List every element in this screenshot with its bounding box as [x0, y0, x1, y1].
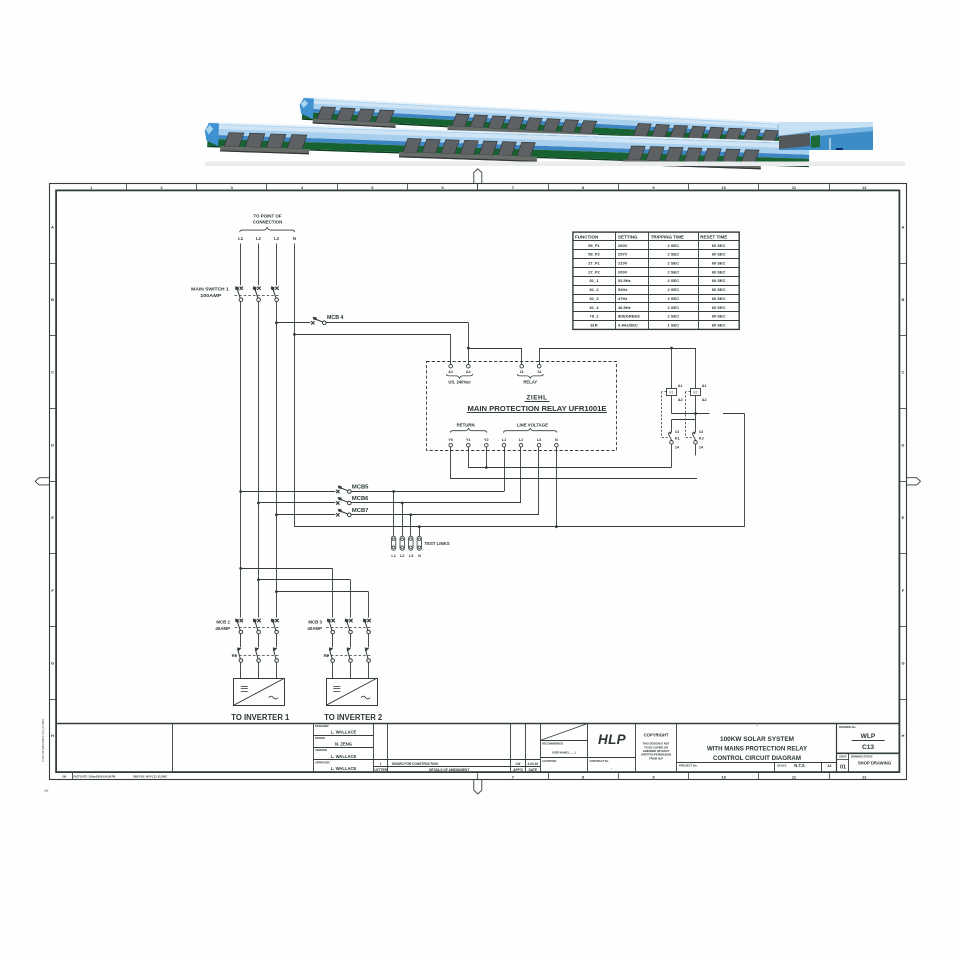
- svg-text:D: D: [51, 442, 54, 447]
- svg-text:H: H: [51, 733, 54, 738]
- svg-text:G: G: [51, 661, 54, 666]
- svg-text:52.5Hz: 52.5Hz: [618, 278, 631, 283]
- svg-text:C: C: [902, 370, 905, 375]
- svg-text:PROJECT No.: PROJECT No.: [679, 764, 698, 768]
- svg-text:ISSUE: ISSUE: [839, 756, 847, 759]
- svg-text:G: G: [901, 661, 904, 666]
- svg-text:MAIN SWITCH 1: MAIN SWITCH 1: [191, 287, 229, 292]
- svg-text:81_3: 81_3: [590, 296, 600, 301]
- svg-text:K1: K1: [670, 390, 674, 394]
- svg-text:FUNCTION: FUNCTION: [575, 234, 598, 239]
- svg-text:N.T.S.: N.T.S.: [794, 763, 805, 768]
- svg-text:TO INVERTER 1: TO INVERTER 1: [231, 712, 289, 722]
- svg-text:N. ZENG: N. ZENG: [335, 742, 352, 747]
- svg-text:E: E: [902, 515, 905, 520]
- svg-text:SCALE: SCALE: [777, 764, 787, 768]
- svg-text:L3: L3: [274, 236, 280, 241]
- svg-text:RELAY: RELAY: [523, 380, 537, 385]
- svg-text:LW: LW: [44, 789, 48, 793]
- svg-text:12: 12: [862, 774, 867, 779]
- svg-text:US, 240Vac: US, 240Vac: [448, 380, 471, 385]
- svg-text:59_P1: 59_P1: [588, 243, 600, 248]
- svg-text:L1: L1: [502, 438, 506, 442]
- svg-text:A2: A2: [466, 370, 471, 374]
- svg-text:L2: L2: [519, 438, 523, 442]
- svg-text:46.5Hz: 46.5Hz: [618, 305, 631, 310]
- svg-text:USER NAME (........): USER NAME (........): [552, 751, 576, 755]
- svg-text:210V: 210V: [618, 261, 628, 266]
- svg-text:60 SEC: 60 SEC: [712, 243, 726, 248]
- svg-text:47Hz: 47Hz: [618, 296, 627, 301]
- svg-text:LINE VOLTAGE: LINE VOLTAGE: [517, 422, 548, 427]
- svg-text:L. WALLACE: L. WALLACE: [331, 730, 357, 735]
- svg-text:THIS DESIGN IS NOT: THIS DESIGN IS NOT: [643, 742, 670, 746]
- svg-text:VERIFIED: VERIFIED: [315, 748, 327, 752]
- svg-text:H: H: [902, 733, 905, 738]
- svg-text:2 SEC: 2 SEC: [668, 252, 680, 257]
- svg-text:L. WALLACE: L. WALLACE: [331, 766, 357, 771]
- svg-text:DETAILS OF AMENDMENT: DETAILS OF AMENDMENT: [429, 768, 469, 772]
- svg-text:MCB6: MCB6: [352, 496, 369, 502]
- svg-text:RETURN: RETURN: [457, 422, 475, 427]
- svg-text:SETTING: SETTING: [618, 234, 638, 239]
- svg-text:A2: A2: [702, 398, 707, 402]
- svg-text:TO INVERTER 2: TO INVERTER 2: [324, 712, 382, 722]
- svg-text:ACCEPTED: ACCEPTED: [542, 759, 556, 763]
- svg-text:60 SEC: 60 SEC: [712, 314, 726, 319]
- svg-text:01: 01: [840, 765, 846, 771]
- svg-text:200V: 200V: [618, 269, 628, 274]
- svg-text:2 SEC: 2 SEC: [668, 269, 680, 274]
- svg-text:12: 12: [862, 185, 867, 190]
- svg-text:RESET TIME: RESET TIME: [700, 234, 727, 239]
- svg-text:60 SEC: 60 SEC: [712, 305, 726, 310]
- svg-text:C:\12-116 DWGS\WLP-C13_01.DWG: C:\12-116 DWGS\WLP-C13_01.DWG: [41, 719, 45, 762]
- svg-text:78_1: 78_1: [590, 314, 600, 319]
- svg-text:L. WALLACE: L. WALLACE: [331, 754, 357, 759]
- svg-text:L3: L3: [537, 438, 541, 442]
- svg-text:2 SEC: 2 SEC: [668, 287, 680, 292]
- svg-text:40AMP: 40AMP: [307, 626, 322, 631]
- svg-text:8DEGREES: 8DEGREES: [618, 314, 640, 319]
- svg-text:81_4: 81_4: [590, 305, 600, 310]
- svg-text:MAIN PROTECTION RELAY UFR1001E: MAIN PROTECTION RELAY UFR1001E: [468, 404, 607, 413]
- svg-text:L1: L1: [391, 554, 395, 558]
- svg-text:A1: A1: [702, 384, 707, 388]
- svg-text:DRAWN: DRAWN: [315, 736, 325, 740]
- svg-text:TO BE COPIED OR: TO BE COPIED OR: [644, 745, 668, 749]
- svg-text:Y1: Y1: [466, 438, 471, 442]
- svg-text:A1: A1: [678, 384, 683, 388]
- svg-text:K1: K1: [675, 437, 680, 441]
- svg-text:2 SEC: 2 SEC: [668, 261, 680, 266]
- svg-text:11: 11: [520, 370, 524, 374]
- svg-text:L1: L1: [238, 236, 244, 241]
- svg-text:81_1: 81_1: [590, 278, 600, 283]
- svg-text:LETTER: LETTER: [374, 768, 387, 772]
- svg-text:A2: A2: [678, 398, 683, 402]
- svg-text:WITH MAINS PROTECTION RELAY: WITH MAINS PROTECTION RELAY: [707, 746, 808, 753]
- svg-text:CONNECTION: CONNECTION: [253, 220, 283, 225]
- svg-text:13: 13: [675, 430, 679, 434]
- svg-text:27_P1: 27_P1: [588, 261, 600, 266]
- svg-text:60 SEC: 60 SEC: [712, 252, 726, 257]
- svg-text:RECOMMENDED: RECOMMENDED: [542, 742, 563, 746]
- svg-text:TO POINT OF: TO POINT OF: [254, 214, 282, 219]
- svg-text:2 SEC: 2 SEC: [668, 296, 680, 301]
- svg-text:A: A: [902, 224, 905, 229]
- svg-text:C13: C13: [862, 744, 874, 751]
- svg-text:L2: L2: [400, 554, 404, 558]
- svg-text:2 SEC: 2 SEC: [668, 314, 680, 319]
- svg-text:LW: LW: [516, 762, 521, 766]
- svg-text:60 SEC: 60 SEC: [712, 261, 726, 266]
- svg-text:TEST LINKS: TEST LINKS: [425, 541, 450, 546]
- svg-text:60 SEC: 60 SEC: [712, 269, 726, 274]
- svg-text:D: D: [902, 442, 905, 447]
- svg-text:10: 10: [721, 185, 726, 190]
- svg-text:B: B: [902, 297, 905, 302]
- svg-text:B: B: [51, 297, 54, 302]
- svg-text:4.04.16: 4.04.16: [527, 762, 538, 766]
- svg-text:60 SEC: 60 SEC: [712, 287, 726, 292]
- svg-text:MCB 4: MCB 4: [327, 315, 344, 321]
- svg-text:ISSUED FOR CONSTRUCTION: ISSUED FOR CONSTRUCTION: [392, 762, 439, 766]
- svg-text:MCB 3: MCB 3: [308, 620, 322, 625]
- svg-text:LW: LW: [62, 774, 67, 778]
- svg-text:10: 10: [721, 774, 726, 779]
- svg-text:K2: K2: [694, 390, 698, 394]
- svg-text:40AMP: 40AMP: [215, 626, 230, 631]
- svg-text:L2: L2: [256, 236, 262, 241]
- svg-text:A3: A3: [827, 764, 831, 768]
- svg-text:MCB 2: MCB 2: [216, 620, 230, 625]
- svg-text:60 SEC: 60 SEC: [712, 322, 726, 327]
- svg-text:TRIPPING TIME: TRIPPING TIME: [651, 234, 684, 239]
- svg-text:DESIGNED: DESIGNED: [315, 724, 329, 728]
- svg-text:N: N: [293, 236, 296, 241]
- svg-text:Y0: Y0: [448, 438, 453, 442]
- svg-text:HLP: HLP: [598, 732, 627, 747]
- svg-text:CONTROL CIRCUIT DIAGRAM: CONTROL CIRCUIT DIAGRAM: [713, 755, 801, 762]
- svg-text:WLP: WLP: [861, 733, 876, 740]
- svg-text:A: A: [51, 224, 54, 229]
- svg-text:ZIEHL: ZIEHL: [527, 395, 548, 402]
- svg-text:PLOT DATE: 15/Apr/2016 8:04:3: PLOT DATE: 15/Apr/2016 8:04:36 PM: [73, 774, 115, 778]
- svg-text:SHOP DRAWING: SHOP DRAWING: [858, 761, 891, 766]
- svg-text:WRITTEN PERMISSION: WRITTEN PERMISSION: [641, 753, 671, 757]
- svg-text:2 SEC: 2 SEC: [668, 278, 680, 283]
- svg-text:CONTRACT No.: CONTRACT No.: [590, 759, 610, 763]
- svg-text:60 SEC: 60 SEC: [712, 296, 726, 301]
- svg-text:Y2: Y2: [484, 438, 489, 442]
- svg-text:2 SEC: 2 SEC: [668, 305, 680, 310]
- svg-text:DRAWING STATUS: DRAWING STATUS: [851, 755, 873, 758]
- svg-text:MCB5: MCB5: [352, 485, 369, 491]
- svg-text:MCB7: MCB7: [352, 508, 369, 514]
- svg-text:81R: 81R: [590, 322, 597, 327]
- svg-text:DRAWING No.: DRAWING No.: [839, 725, 857, 729]
- svg-text:COPYRIGHT: COPYRIGHT: [644, 733, 669, 738]
- svg-text:2 SEC: 2 SEC: [668, 243, 680, 248]
- svg-text:AMENDED WITHOUT: AMENDED WITHOUT: [643, 749, 670, 753]
- svg-text:N: N: [555, 438, 558, 442]
- svg-text:DATE: DATE: [529, 768, 537, 772]
- svg-text:APPROVED: APPROVED: [315, 760, 330, 764]
- svg-text:60 SEC: 60 SEC: [712, 278, 726, 283]
- svg-text:260V: 260V: [618, 243, 628, 248]
- svg-text:52Hz: 52Hz: [618, 287, 627, 292]
- svg-text:A1: A1: [448, 370, 453, 374]
- svg-text:C: C: [51, 370, 54, 375]
- svg-text:100KW SOLAR SYSTEM: 100KW SOLAR SYSTEM: [720, 736, 794, 743]
- svg-text:DWG FILE: WLP-C13_01.DWG: DWG FILE: WLP-C13_01.DWG: [133, 774, 168, 778]
- svg-text:13: 13: [699, 430, 703, 434]
- svg-text:1 SEC: 1 SEC: [668, 322, 680, 327]
- svg-text:FROM HLP: FROM HLP: [649, 756, 663, 760]
- svg-text:K2: K2: [699, 437, 704, 441]
- svg-text:257V: 257V: [618, 252, 628, 257]
- svg-text:APP'D: APP'D: [513, 768, 523, 772]
- svg-text:59_P2: 59_P2: [588, 252, 600, 257]
- svg-text:N: N: [418, 554, 421, 558]
- svg-text:81_2: 81_2: [590, 287, 600, 292]
- svg-text:1: 1: [380, 762, 382, 766]
- svg-text:0.4Hz/SEC: 0.4Hz/SEC: [618, 322, 638, 327]
- svg-text:27_P2: 27_P2: [588, 269, 600, 274]
- svg-text:E: E: [51, 515, 54, 520]
- svg-text:-: -: [611, 766, 612, 770]
- svg-text:100AMP: 100AMP: [200, 293, 221, 298]
- svg-text:L3: L3: [409, 554, 413, 558]
